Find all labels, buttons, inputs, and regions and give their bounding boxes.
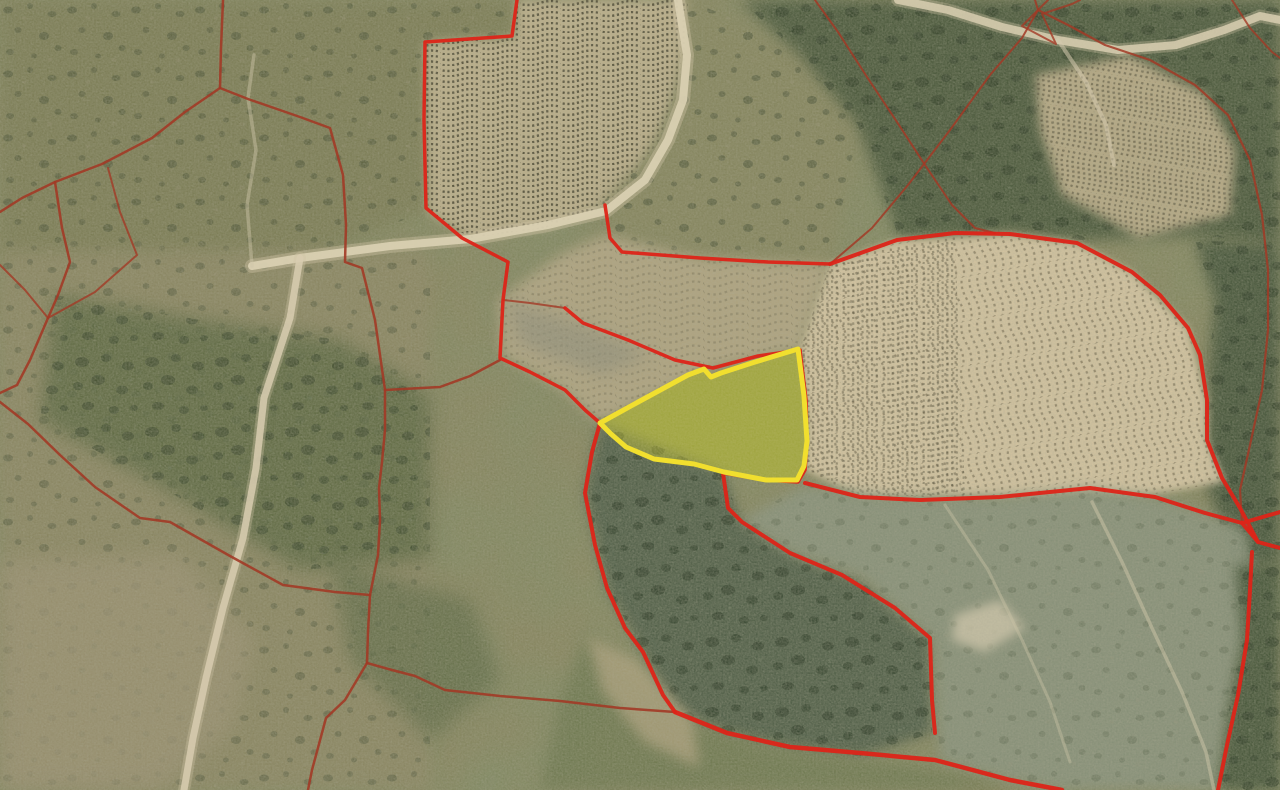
terrain-layer	[0, 0, 1280, 790]
map-canvas[interactable]	[0, 0, 1280, 790]
image-grain	[0, 0, 1280, 790]
map-viewport[interactable]	[0, 0, 1280, 790]
